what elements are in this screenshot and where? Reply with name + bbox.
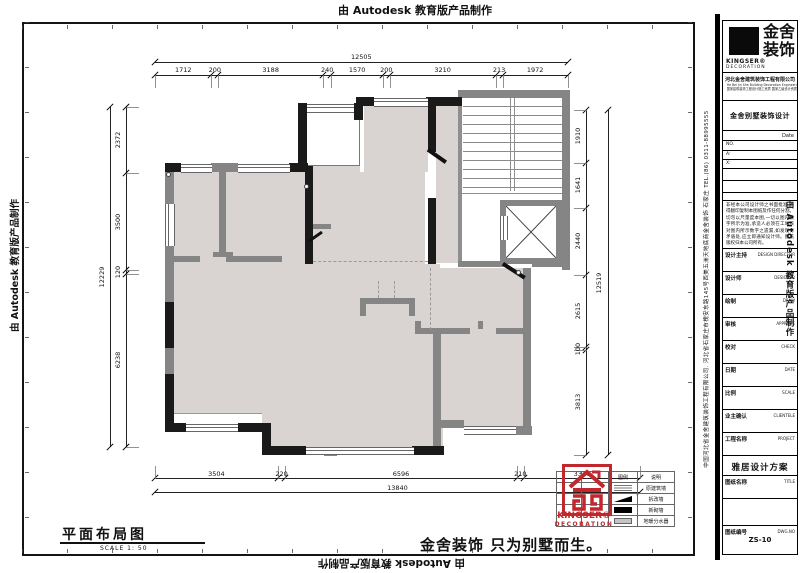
brand-sub: DECORATION: [726, 65, 766, 70]
wall-original: [556, 200, 562, 264]
window: [165, 204, 175, 246]
legend-symbol-cell: [609, 494, 638, 505]
wall-new: [165, 163, 181, 172]
dim-label: 6238: [114, 352, 122, 369]
dwg-no-row: 图纸编号 DWG.NO ZS-10: [723, 526, 797, 554]
wall-original: [211, 163, 238, 172]
wedge-symbol-icon: [614, 496, 632, 502]
dashed-line: [430, 268, 431, 330]
floor-area: [271, 428, 443, 448]
field-b-row: X:: [723, 160, 797, 169]
wall-original: [360, 298, 415, 304]
stair-stringer: [514, 97, 515, 191]
wall-new: [262, 446, 306, 455]
dim-label: 2615: [574, 303, 582, 320]
dim-label: 12229: [98, 267, 106, 288]
dim-line: [155, 62, 568, 63]
project-name-section: 雅居设计方案: [723, 456, 797, 476]
dim-extension: [155, 466, 156, 479]
stair-landing-line: [462, 193, 562, 194]
wall-original: [444, 328, 470, 334]
stair-wall-thin: [458, 98, 462, 262]
legend-header: 说明: [638, 472, 675, 483]
dim-extension: [574, 110, 587, 111]
dim-label: 12519: [595, 272, 603, 293]
stamp-sub: DECORATION: [548, 521, 620, 528]
stair-treads: [463, 97, 562, 191]
row-label-zh: 工程名称: [725, 435, 747, 443]
dim-label: 240: [321, 66, 333, 74]
dim-label: 200: [380, 66, 392, 74]
figure-title-underline: [60, 542, 205, 544]
wall-original: [496, 328, 523, 334]
window: [374, 98, 428, 107]
wall-original: [458, 261, 504, 267]
wall-original: [165, 348, 174, 374]
blank-row-1: [723, 169, 797, 181]
dashed-line: [394, 281, 395, 298]
window: [181, 164, 212, 173]
row-label-zh: 绘制: [725, 297, 736, 305]
wall-original: [313, 224, 331, 229]
dim-extension: [126, 274, 139, 275]
project-line: 金舍别墅装饰设计: [723, 101, 797, 121]
wall-new: [305, 166, 313, 264]
wall-original: [165, 172, 174, 204]
legend-desc-cell: 原建筑墙: [638, 483, 675, 494]
row-label-zh: 比例: [725, 389, 736, 397]
row-label-en: PROJECT: [778, 436, 795, 441]
wall-original: [516, 426, 532, 435]
window: [464, 426, 516, 435]
wall-original: [226, 256, 282, 262]
dim-extension: [390, 75, 391, 88]
kingser-stamp-icon: [562, 464, 612, 516]
titleblock-divider-bar: [715, 14, 720, 560]
autodesk-watermark-right: 由 Autodesk 教育版产品制作: [783, 200, 795, 415]
wall-original: [433, 334, 441, 448]
wall-new: [412, 446, 444, 455]
dim-extension: [568, 75, 569, 88]
corner-marker: [304, 184, 309, 189]
wall-original: [562, 98, 570, 270]
dim-label: 2440: [574, 233, 582, 250]
field-a-row: A:: [723, 151, 797, 160]
corner-marker: [166, 172, 171, 177]
dim-extension: [574, 455, 587, 456]
wall-original: [219, 172, 226, 256]
dim-extension: [574, 163, 587, 164]
bay-window: [300, 104, 360, 166]
elevator-x-icon: [506, 206, 556, 258]
row-label-zh: 设计师: [725, 274, 742, 282]
legend-desc-cell: 地暖分水器: [638, 516, 675, 527]
wall-original: [532, 261, 570, 267]
window: [186, 424, 238, 432]
logo-line2: 装饰: [763, 41, 795, 59]
no-row: NO.: [723, 141, 797, 151]
floor-area: [436, 103, 460, 263]
window: [238, 164, 290, 173]
row-label-zh: 业主确认: [725, 412, 747, 420]
dim-extension: [218, 75, 219, 88]
dim-extension: [126, 173, 139, 174]
dim-label: 1972: [527, 66, 544, 74]
wall-original: [409, 304, 415, 316]
wall-original: [478, 321, 483, 329]
dim-label: 1570: [349, 66, 366, 74]
dim-line: [110, 107, 111, 447]
project-name: 雅居设计方案: [723, 456, 797, 473]
dim-label: 3500: [114, 213, 122, 230]
wall-original: [523, 268, 531, 434]
dwg-no-zh: 图纸编号: [725, 528, 747, 536]
company-qualification: 国家建筑装饰工程设计施工资质 国家乙级设计资质: [727, 87, 794, 92]
dim-label: 2372: [114, 132, 122, 149]
dim-extension: [155, 75, 156, 88]
row-label-zh: 设计主持: [725, 251, 747, 259]
dim-line: [608, 110, 609, 455]
wall-new: [298, 103, 307, 166]
floor-area: [364, 106, 428, 172]
dim-extension: [574, 208, 587, 209]
brand-name: KINGSER®: [726, 58, 766, 65]
sheet-title-zh: 图纸名称: [725, 478, 747, 486]
titleblock-logo-section: 金舍 装饰 KINGSER® DECORATION: [723, 21, 797, 73]
titleblock-row-project: 工程名称PROJECT: [723, 433, 797, 456]
company-name: 河北金舍建筑装饰工程有限公司: [723, 76, 797, 83]
legend-desc-cell: 新砌墙: [638, 505, 675, 516]
dim-tick: [604, 451, 611, 458]
wall-original: [440, 420, 464, 428]
dim-extension: [211, 75, 212, 88]
sheet-title-en: TITLE: [784, 479, 795, 484]
dim-label: 120: [114, 266, 122, 278]
blank-row-2: [723, 181, 797, 193]
dwg-no-value: ZS-10: [723, 536, 797, 544]
floor-area: [306, 166, 360, 174]
dwg-no-en: DWG.NO: [777, 529, 795, 534]
legend-header: 图例: [609, 472, 638, 483]
kingser-logo-mark: [729, 27, 759, 55]
dim-label: 6596: [393, 470, 410, 478]
brand-slogan: 金舍装饰 只为别墅而生。: [420, 534, 602, 555]
floor-area: [436, 268, 523, 426]
cad-floorplan-screenshot: { "watermark": "由 Autodesk 教育版产品制作", "pl…: [0, 0, 800, 573]
dim-label: 3188: [262, 66, 279, 74]
wall-new: [428, 106, 436, 152]
dim-line: [126, 107, 127, 447]
figure-scale: SCALE 1: 50: [100, 545, 148, 552]
row-label-zh: 校对: [725, 343, 736, 351]
titleblock-project-section: 金舍别墅装饰设计: [723, 101, 797, 131]
wall-original: [165, 246, 174, 302]
blank-row-4: [723, 499, 797, 526]
wall-new: [428, 198, 436, 264]
sheet-title-row: 图纸名称 TITLE: [723, 476, 797, 499]
dim-label: 220: [275, 470, 287, 478]
dim-extension: [496, 75, 497, 88]
dim-label: 3210: [434, 66, 451, 74]
dim-extension: [126, 447, 139, 448]
wall-original: [360, 304, 366, 316]
row-label-zh: 审核: [725, 320, 736, 328]
window: [302, 104, 358, 113]
company-name-en: He Bei Jin She Building Decoration Engin…: [727, 83, 794, 87]
dim-label: 1641: [574, 177, 582, 194]
titleblock-company-section: 河北金舍建筑装饰工程有限公司 He Bei Jin She Building D…: [723, 73, 797, 101]
dashed-line: [313, 261, 428, 262]
date-row: Date: [723, 131, 797, 141]
logo-line1: 金舍: [763, 23, 795, 41]
wall-original: [458, 90, 570, 98]
company-address-vertical: 中国河北省金舍建筑装饰工程有限公司. 河北省石家庄市槐安东路145号西美五洲天地…: [702, 11, 710, 567]
kingser-logo-text: 金舍 装饰: [763, 23, 795, 59]
dim-extension: [331, 75, 332, 88]
corner-marker: [516, 270, 521, 275]
legend-symbol-cell: [609, 483, 638, 494]
dim-label: 3813: [574, 394, 582, 411]
legend-desc-cell: 拆改墙: [638, 494, 675, 505]
dim-label: 1910: [574, 128, 582, 145]
wall-new: [165, 302, 174, 348]
dim-extension: [503, 75, 504, 88]
dim-extension: [323, 75, 324, 88]
dim-label: 13840: [387, 484, 408, 492]
dim-label: 210: [514, 470, 526, 478]
dim-extension: [574, 275, 587, 276]
row-label-zh: 日期: [725, 366, 736, 374]
wall-original: [174, 256, 200, 262]
stair-stringer: [510, 97, 511, 191]
stamp-brand: KINGSER®: [548, 511, 620, 521]
figure-title: 平面布局图: [62, 524, 147, 544]
dim-label: 100: [574, 342, 582, 354]
dim-extension: [126, 107, 139, 108]
dim-label: 1712: [175, 66, 192, 74]
dim-label: 12505: [351, 53, 372, 61]
window: [306, 447, 414, 455]
dim-extension: [383, 75, 384, 88]
dim-label: 200: [209, 66, 221, 74]
wall-new: [426, 97, 462, 106]
kingser-stamp-glyph: [565, 467, 609, 513]
wall-new: [165, 423, 186, 432]
floor-plan: 1712200318824015702003210213197212505350…: [0, 0, 800, 573]
dashed-line: [378, 281, 379, 298]
dim-tick: [106, 443, 113, 450]
dim-label: 213: [493, 66, 505, 74]
dim-label: 3504: [208, 470, 225, 478]
wall-new: [356, 97, 374, 106]
hatch-symbol-icon: [614, 485, 632, 491]
